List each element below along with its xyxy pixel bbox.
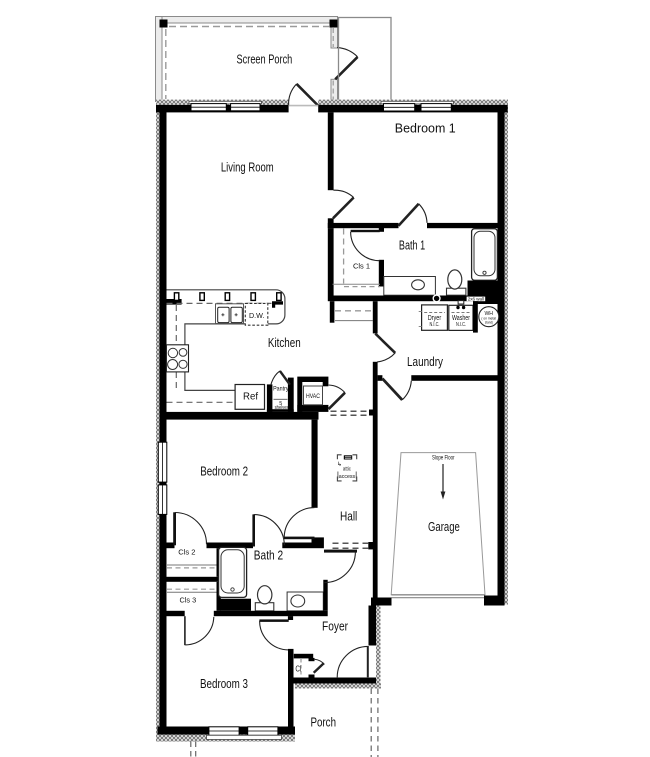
svg-text:Cls 3: Cls 3 <box>180 595 197 604</box>
svg-text:access: access <box>339 474 356 480</box>
svg-text:N.I.C.: N.I.C. <box>430 322 440 328</box>
svg-text:D.W.: D.W. <box>249 311 265 320</box>
svg-text:HVAC: HVAC <box>306 394 321 400</box>
svg-text:shelves: shelves <box>275 405 289 411</box>
svg-text:Laundry: Laundry <box>407 354 443 369</box>
svg-text:Cls 1: Cls 1 <box>353 261 370 270</box>
svg-text:Bath 1: Bath 1 <box>399 238 425 253</box>
svg-text:Slope Floor: Slope Floor <box>432 456 455 462</box>
svg-text:Foyer: Foyer <box>322 619 349 634</box>
svg-text:Garage: Garage <box>428 519 460 534</box>
svg-text:↳: ↳ <box>337 461 342 468</box>
svg-text:Screen Porch: Screen Porch <box>237 52 293 67</box>
svg-text:attic: attic <box>343 467 351 473</box>
svg-text:Kitchen: Kitchen <box>268 335 301 350</box>
svg-text:Living Room: Living Room <box>221 159 274 174</box>
svg-text:Bedroom 2: Bedroom 2 <box>200 464 248 479</box>
svg-text:Hall: Hall <box>340 509 357 524</box>
svg-text:Ref: Ref <box>243 392 258 403</box>
svg-text:N.I.C.: N.I.C. <box>456 322 466 328</box>
svg-text:stand): stand) <box>485 320 493 324</box>
svg-text:Cl: Cl <box>295 665 301 674</box>
svg-text:Bedroom 3: Bedroom 3 <box>200 676 248 691</box>
svg-text:Cls 2: Cls 2 <box>178 548 195 557</box>
svg-text:Dryer: Dryer <box>428 315 442 322</box>
svg-text:Pantry: Pantry <box>273 386 289 392</box>
svg-text:Bedroom 1: Bedroom 1 <box>395 121 456 136</box>
svg-text:Bath 2: Bath 2 <box>254 548 283 563</box>
svg-text:Washer: Washer <box>452 315 471 322</box>
svg-text:Porch: Porch <box>311 715 337 730</box>
svg-text:2x6 wall: 2x6 wall <box>468 296 484 301</box>
